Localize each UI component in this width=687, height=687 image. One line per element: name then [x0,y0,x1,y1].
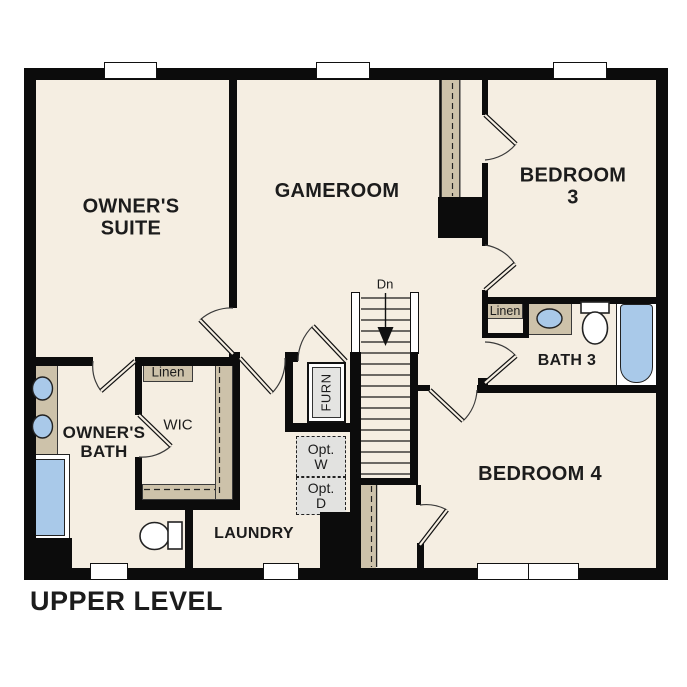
wall-wic-bottom [135,500,240,510]
wall-bed3-left-b [482,163,488,197]
label-stairs-dn: Dn [377,278,394,293]
room-label-bedroom3: BEDROOM 3 [516,165,630,210]
wall-bed3-left-d [482,290,488,297]
stair-rail-left [351,292,360,354]
furnace-label: FURN [319,373,334,411]
wall-furn-bottom [285,423,358,432]
window-top-gameroom [316,62,370,79]
bedroom4-closet-shelf [361,485,376,568]
room-label-gameroom: GAMEROOM [275,180,400,202]
window-top-owners-suite [104,62,157,79]
room-label-laundry: LAUNDRY [214,525,294,543]
optional-dryer-label: Opt. D [308,481,334,510]
wall-bath-top-a [36,357,93,366]
wall-bed4-closet-jamb-top [416,485,421,505]
bath3-vanity [527,302,572,335]
window-top-bedroom3 [553,62,607,79]
label-linen-owners: Linen [151,364,184,379]
wall-wic-right [233,366,240,506]
wall-wic-left-a [135,366,142,415]
wic-shelf-right [215,365,233,500]
room-label-owners-bath: OWNER'S BATH [63,423,146,461]
wall-furn-left [285,360,293,432]
floor-plan: Opt. W Opt. D FURN [0,0,687,687]
optional-dryer-box: Opt. D [296,477,346,515]
label-linen-bath3: Linen [490,304,521,318]
wall-outer-right [656,68,668,580]
owners-shower-pan [32,459,65,536]
wall-stair-right [410,352,418,485]
room-label-owners-suite: OWNER'S SUITE [83,196,180,241]
wic-shelf-bottom [142,484,216,500]
wall-bed3-left-c [482,238,488,246]
wall-block-laundry-se [320,512,361,568]
furnace-cabinet: FURN [312,367,341,418]
optional-washer-label: Opt. W [308,442,334,471]
page-title: UPPER LEVEL [30,586,223,617]
wall-bed3-left-a [482,80,488,115]
chase-block [438,197,488,238]
wall-stair-left [350,352,361,515]
window-bottom-bedroom4-a [477,563,529,580]
wall-linen3-bottom [482,333,525,338]
window-bottom-bedroom4-b [528,563,579,580]
bedroom3-closet-shelf [442,80,459,197]
wall-wic-left-b [135,457,142,503]
window-bottom-laundry [263,563,299,580]
room-label-bath3: BATH 3 [538,352,596,370]
wall-bed3-bottom [482,297,657,304]
optional-washer-box: Opt. W [296,436,346,477]
window-bottom-owners-bath [90,563,128,580]
wall-stair-bottom [350,478,418,485]
wall-suite-gameroom [229,80,237,308]
room-label-wic: WIC [163,418,192,435]
furnace-unit: FURN [307,362,346,423]
wall-block-bath-sw [24,538,72,568]
wall-bath3-bed4 [477,385,657,393]
wall-bed4-closet-jamb-bottom [417,543,424,568]
stair-rail-right [410,292,419,354]
wall-bed4-door-stub [418,385,430,391]
bath3-tub [620,304,653,383]
wall-bath-laundry [185,510,193,568]
room-label-bedroom4: BEDROOM 4 [478,463,602,485]
wall-outer-left [24,68,36,580]
wall-linen3-right [523,303,529,338]
